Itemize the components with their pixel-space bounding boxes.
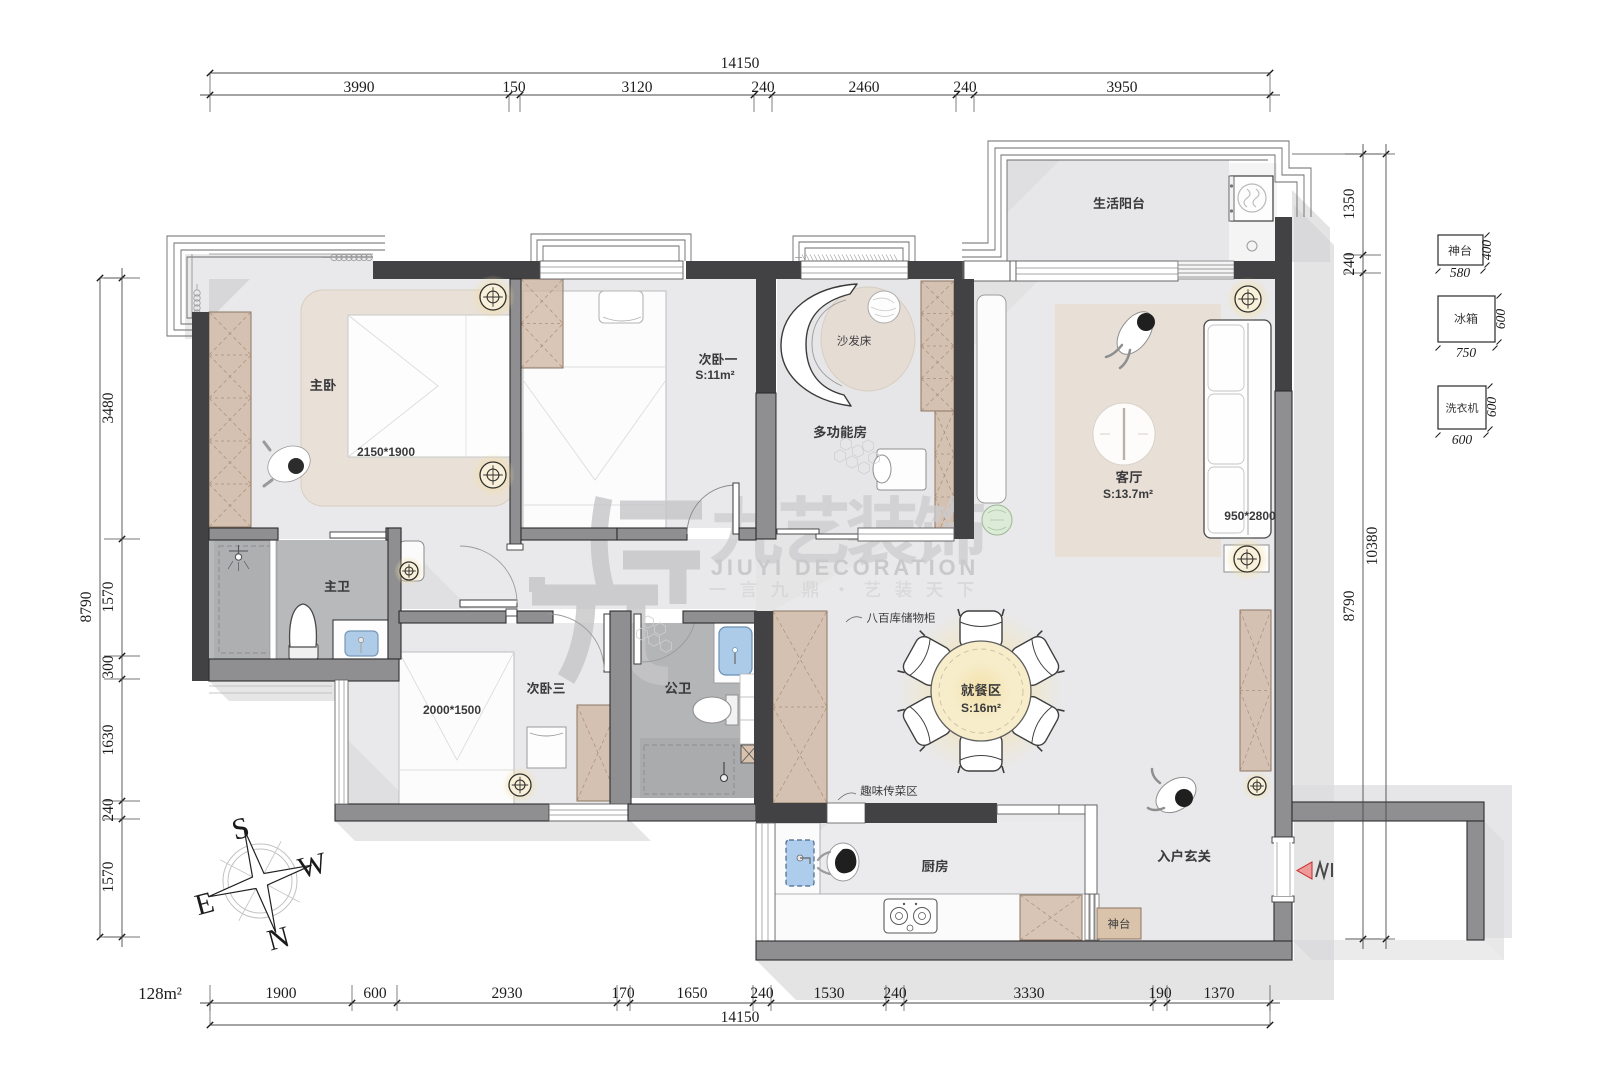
svg-text:170: 170: [611, 985, 635, 1002]
svg-text:750: 750: [1456, 345, 1477, 360]
svg-text:1630: 1630: [100, 724, 117, 755]
svg-text:3990: 3990: [344, 79, 375, 96]
svg-text:400: 400: [1479, 240, 1494, 261]
svg-text:8790: 8790: [1341, 590, 1358, 621]
svg-text:240: 240: [750, 985, 774, 1002]
svg-text:190: 190: [1148, 985, 1172, 1002]
svg-text:3950: 3950: [1107, 79, 1138, 96]
svg-text:1370: 1370: [1204, 985, 1235, 1002]
svg-text:3480: 3480: [100, 392, 117, 423]
svg-text:600: 600: [1452, 432, 1473, 447]
svg-text:150: 150: [502, 79, 526, 96]
svg-text:S:11m²: S:11m²: [695, 368, 734, 382]
svg-text:2460: 2460: [849, 79, 880, 96]
svg-text:240: 240: [100, 798, 117, 822]
svg-text:14150: 14150: [721, 55, 760, 72]
svg-text:1650: 1650: [677, 985, 708, 1002]
svg-text:240: 240: [883, 985, 907, 1002]
svg-text:128m²: 128m²: [138, 984, 182, 1003]
svg-text:240: 240: [953, 79, 977, 96]
svg-text:240: 240: [1341, 252, 1358, 276]
svg-text:600: 600: [1484, 397, 1499, 418]
svg-text:3120: 3120: [622, 79, 653, 96]
svg-text:600: 600: [1493, 309, 1508, 330]
svg-text:1350: 1350: [1341, 188, 1358, 219]
svg-text:14150: 14150: [721, 1009, 760, 1026]
svg-text:240: 240: [751, 79, 775, 96]
svg-text:1900: 1900: [266, 985, 297, 1002]
svg-text:S:16m²: S:16m²: [961, 701, 1001, 715]
svg-text:3330: 3330: [1014, 985, 1045, 1002]
svg-text:8790: 8790: [78, 591, 95, 622]
svg-text:1530: 1530: [814, 985, 845, 1002]
svg-text:1570: 1570: [100, 861, 117, 892]
svg-text:950*2800: 950*2800: [1224, 509, 1276, 523]
svg-text:1570: 1570: [100, 581, 117, 612]
svg-text:2930: 2930: [492, 985, 523, 1002]
svg-text:S:13.7m²: S:13.7m²: [1103, 487, 1153, 501]
svg-text:2000*1500: 2000*1500: [423, 703, 481, 717]
svg-text:JIUYI DECORATION: JIUYI DECORATION: [711, 555, 979, 580]
svg-text:300: 300: [100, 655, 117, 679]
svg-text:580: 580: [1450, 265, 1471, 280]
svg-text:2150*1900: 2150*1900: [357, 445, 415, 459]
svg-text:600: 600: [363, 985, 387, 1002]
svg-text:10380: 10380: [1364, 526, 1381, 565]
